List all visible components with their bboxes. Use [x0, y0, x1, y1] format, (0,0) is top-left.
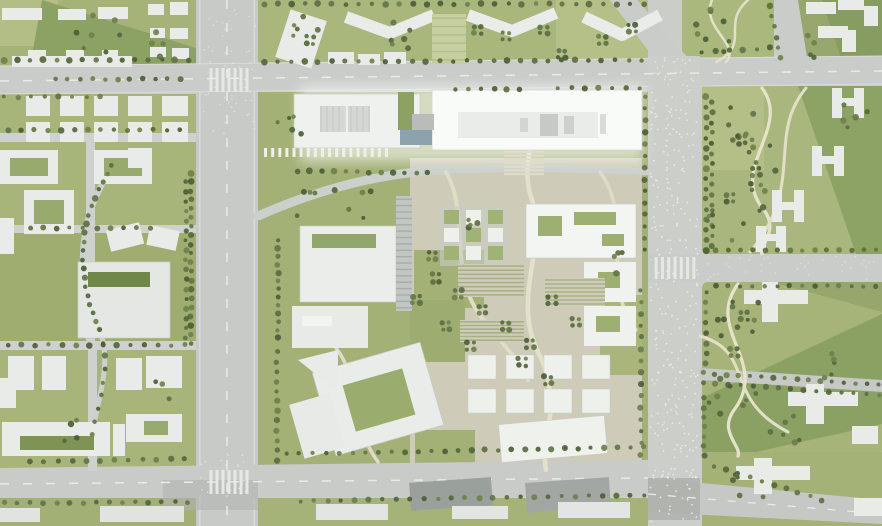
- tree: [425, 170, 430, 175]
- tree: [183, 238, 187, 242]
- tree: [332, 187, 338, 193]
- tree: [505, 495, 510, 500]
- tree: [113, 342, 119, 348]
- building: [26, 96, 50, 116]
- texture-dot: [667, 359, 669, 361]
- tree: [703, 227, 709, 233]
- texture-dot: [251, 69, 253, 71]
- tree: [188, 322, 195, 329]
- texture-dot: [691, 416, 693, 418]
- texture-dot: [244, 87, 246, 89]
- tree: [744, 310, 749, 315]
- tree: [791, 414, 796, 419]
- masterplan-site-plan: [0, 0, 882, 526]
- texture-dot: [686, 85, 688, 87]
- tree: [704, 351, 710, 357]
- tree: [464, 340, 470, 346]
- building: [842, 30, 856, 52]
- tree: [702, 360, 708, 366]
- tree: [390, 169, 396, 175]
- tree: [86, 342, 92, 348]
- building: [358, 54, 380, 65]
- texture-dot: [657, 67, 659, 69]
- building: [42, 356, 66, 390]
- texture-dot: [676, 444, 678, 446]
- texture-dot: [236, 90, 238, 92]
- tree: [800, 284, 804, 288]
- tree: [737, 493, 743, 499]
- building: [60, 96, 84, 116]
- tree: [703, 176, 708, 181]
- texture-dot: [671, 395, 673, 397]
- tree: [383, 59, 388, 64]
- tree: [576, 446, 581, 451]
- tree: [416, 449, 421, 454]
- tree: [442, 448, 448, 454]
- tree: [274, 398, 280, 404]
- tree: [274, 379, 280, 385]
- tree: [407, 496, 412, 501]
- tree: [308, 190, 313, 195]
- tree: [86, 293, 91, 298]
- texture-dot: [689, 219, 691, 221]
- tree: [707, 214, 711, 218]
- tree: [153, 457, 159, 463]
- tree: [808, 494, 812, 498]
- tree: [390, 42, 395, 47]
- texture-dot: [666, 485, 668, 487]
- tree: [184, 326, 188, 330]
- tree: [441, 328, 445, 332]
- building: [444, 228, 459, 242]
- tree: [127, 76, 132, 81]
- tree: [410, 294, 416, 300]
- tree: [639, 58, 643, 62]
- texture-dot: [653, 206, 655, 208]
- tree: [414, 171, 419, 176]
- texture-dot: [729, 256, 731, 258]
- tree: [46, 342, 50, 346]
- texture-dot: [655, 100, 657, 102]
- tree: [311, 498, 315, 502]
- tree: [703, 310, 708, 315]
- tree: [727, 39, 732, 44]
- texture-dot: [674, 457, 676, 459]
- building: [409, 477, 493, 511]
- building: [444, 246, 459, 260]
- texture-dot: [248, 16, 250, 18]
- texture-dot: [696, 121, 698, 123]
- texture-dot: [654, 432, 656, 434]
- building: [148, 4, 164, 15]
- texture-dot: [678, 118, 680, 120]
- tree: [641, 177, 647, 183]
- tree: [368, 188, 374, 194]
- tree: [276, 238, 280, 242]
- tree: [703, 114, 709, 120]
- tree: [424, 1, 430, 7]
- tree: [6, 343, 11, 348]
- texture-dot: [681, 445, 683, 447]
- building: [488, 228, 503, 242]
- texture-dot: [676, 131, 678, 133]
- building: [162, 96, 188, 116]
- texture-dot: [761, 270, 763, 272]
- tree: [87, 302, 92, 307]
- tree: [695, 31, 701, 37]
- tree: [183, 179, 188, 184]
- texture-dot: [669, 252, 671, 254]
- texture-dot: [670, 108, 672, 110]
- texture-dot: [224, 97, 226, 99]
- tree: [750, 247, 755, 252]
- building: [98, 7, 128, 19]
- tree: [703, 341, 709, 347]
- tree: [159, 499, 164, 504]
- tree: [452, 295, 458, 301]
- tree: [492, 58, 497, 63]
- texture-dot: [655, 61, 657, 63]
- tree: [730, 137, 736, 143]
- texture-dot: [691, 78, 693, 80]
- texture-dot: [224, 28, 226, 30]
- tree: [456, 448, 461, 453]
- texture-dot: [707, 279, 709, 281]
- tree: [482, 446, 488, 452]
- tree: [422, 496, 427, 501]
- courtyard: [602, 234, 624, 246]
- tree: [757, 172, 763, 178]
- tree: [638, 288, 642, 292]
- tree: [743, 140, 748, 145]
- texture-dot: [231, 106, 233, 108]
- tree: [90, 204, 94, 208]
- tree: [310, 451, 314, 455]
- texture-dot: [653, 474, 655, 476]
- building: [780, 202, 796, 210]
- tree: [701, 370, 706, 375]
- tree: [562, 445, 568, 451]
- tree: [112, 457, 118, 463]
- tree: [314, 59, 320, 65]
- tree: [703, 320, 708, 325]
- tree: [829, 372, 833, 376]
- tree: [504, 57, 511, 64]
- texture-dot: [850, 267, 852, 269]
- tree: [93, 57, 99, 63]
- tree: [112, 127, 116, 131]
- tree: [438, 58, 443, 63]
- tree: [183, 247, 189, 253]
- texture-dot: [671, 195, 673, 197]
- tree: [752, 317, 757, 322]
- tree: [548, 446, 554, 452]
- texture-dot: [684, 433, 686, 435]
- texture-dot: [222, 35, 224, 37]
- tree: [740, 402, 746, 408]
- tree: [188, 332, 193, 337]
- texture-dot: [688, 414, 690, 416]
- tree: [120, 500, 125, 505]
- texture-dot: [685, 239, 687, 241]
- tree: [709, 152, 714, 157]
- tree: [750, 173, 755, 178]
- building: [2, 8, 42, 20]
- street-curve: [446, 169, 646, 172]
- texture-dot: [655, 284, 657, 286]
- courtyard: [538, 216, 562, 236]
- building: [94, 122, 118, 142]
- tree: [72, 127, 77, 132]
- courtyard: [574, 212, 616, 225]
- tree: [85, 127, 91, 133]
- tree: [750, 166, 755, 171]
- tree: [627, 493, 632, 498]
- texture-dot: [678, 182, 680, 184]
- tree: [703, 330, 709, 336]
- roof-detail: [302, 316, 332, 326]
- tree: [83, 285, 88, 290]
- tree: [864, 392, 868, 396]
- tree: [721, 18, 727, 24]
- tree: [709, 99, 714, 104]
- tree: [94, 500, 99, 505]
- texture-dot: [669, 505, 671, 507]
- texture-dot: [661, 313, 663, 315]
- texture-dot: [665, 403, 667, 405]
- tree: [518, 58, 523, 63]
- texture-dot: [690, 472, 692, 474]
- building: [170, 28, 188, 39]
- texture-dot: [657, 129, 659, 131]
- texture-dot: [670, 409, 672, 411]
- texture-dot: [663, 450, 665, 452]
- atrium-detail: [564, 116, 574, 134]
- building: [0, 508, 40, 522]
- texture-dot: [863, 260, 865, 262]
- masterplan-viewport: [0, 0, 882, 526]
- tree: [189, 215, 194, 220]
- texture-dot: [232, 63, 234, 65]
- texture-dot: [667, 182, 669, 184]
- tree: [503, 86, 509, 92]
- texture-dot: [213, 130, 215, 132]
- tree: [642, 141, 648, 147]
- texture-dot: [684, 63, 686, 65]
- texture-dot: [687, 499, 689, 501]
- tree: [704, 136, 709, 141]
- texture-dot: [655, 116, 657, 118]
- tree: [98, 127, 103, 132]
- texture-dot: [237, 464, 239, 466]
- texture-dot: [685, 247, 687, 249]
- tree: [276, 295, 281, 300]
- texture-dot: [662, 330, 664, 332]
- tree: [825, 283, 829, 287]
- texture-dot: [657, 435, 659, 437]
- tree: [724, 372, 730, 378]
- texture-dot: [670, 363, 672, 365]
- texture-dot: [653, 184, 655, 186]
- texture-dot: [692, 134, 694, 136]
- tree: [418, 294, 422, 298]
- tree: [274, 417, 280, 423]
- texture-dot: [656, 330, 658, 332]
- tree: [703, 105, 708, 110]
- tree: [142, 342, 147, 347]
- tree: [380, 497, 384, 501]
- tree: [615, 250, 621, 256]
- tree: [629, 445, 633, 449]
- tree: [702, 453, 708, 459]
- building: [558, 502, 630, 518]
- tree: [714, 393, 720, 399]
- texture-dot: [659, 204, 661, 206]
- texture-dot: [679, 422, 681, 424]
- tree: [556, 55, 560, 59]
- tree: [643, 188, 647, 192]
- tree: [705, 290, 709, 294]
- tree: [586, 1, 593, 8]
- texture-dot: [677, 58, 679, 60]
- texture-dot: [691, 369, 693, 371]
- tree: [184, 209, 188, 213]
- tree: [93, 319, 98, 324]
- texture-dot: [680, 451, 682, 453]
- texture-dot: [673, 474, 675, 476]
- tree: [55, 501, 60, 506]
- building: [864, 6, 878, 26]
- tree: [768, 143, 772, 147]
- tree: [597, 41, 601, 45]
- tree: [751, 383, 756, 388]
- tree: [562, 55, 568, 61]
- tree: [91, 311, 96, 316]
- texture-dot: [255, 25, 257, 27]
- tree: [703, 145, 709, 151]
- texture-dot: [668, 473, 670, 475]
- tree: [800, 387, 806, 393]
- texture-dot: [844, 261, 846, 263]
- texture-dot: [694, 383, 696, 385]
- green-roof: [312, 234, 376, 248]
- texture-dot: [692, 469, 694, 471]
- tree: [787, 247, 793, 253]
- tree: [637, 405, 643, 411]
- texture-dot: [656, 348, 658, 350]
- texture-dot: [650, 487, 652, 489]
- tree: [501, 30, 505, 34]
- tree: [623, 85, 629, 91]
- tree: [704, 125, 709, 130]
- texture-dot: [248, 113, 250, 115]
- tree: [70, 458, 76, 464]
- tree: [298, 131, 304, 137]
- texture-dot: [695, 447, 697, 449]
- texture-dot: [657, 423, 659, 425]
- tree: [275, 328, 279, 332]
- tree: [638, 381, 644, 387]
- tree: [86, 213, 91, 218]
- texture-dot: [650, 520, 652, 522]
- texture-dot: [680, 109, 682, 111]
- tree: [577, 317, 581, 321]
- texture-dot: [212, 50, 214, 52]
- texture-dot: [688, 145, 690, 147]
- garden-plot: [432, 14, 466, 64]
- tree: [274, 245, 281, 252]
- tree: [537, 25, 543, 31]
- texture-dot: [663, 365, 665, 367]
- tree: [782, 420, 787, 425]
- texture-dot: [697, 374, 699, 376]
- tree: [853, 382, 857, 386]
- texture-dot: [873, 261, 875, 263]
- tree: [531, 344, 537, 350]
- tree: [471, 347, 477, 353]
- texture-dot: [665, 127, 667, 129]
- tree: [704, 237, 710, 243]
- texture-dot: [670, 239, 672, 241]
- tree: [173, 499, 177, 503]
- tree: [447, 320, 451, 324]
- tree: [472, 25, 477, 30]
- building: [116, 358, 142, 390]
- building: [736, 466, 810, 480]
- tree: [702, 93, 709, 100]
- texture-dot: [690, 375, 692, 377]
- tree: [312, 191, 317, 196]
- tree: [427, 250, 431, 254]
- texture-dot: [677, 202, 679, 204]
- texture-dot: [654, 221, 656, 223]
- texture-dot: [653, 107, 655, 109]
- tree: [275, 334, 281, 340]
- tree: [492, 1, 498, 7]
- tree: [291, 34, 295, 38]
- tree: [518, 495, 522, 499]
- tree: [642, 236, 647, 241]
- texture-dot: [243, 461, 245, 463]
- texture-dot: [253, 121, 255, 123]
- texture-dot: [682, 168, 684, 170]
- texture-dot: [675, 378, 677, 380]
- texture-dot: [203, 49, 205, 51]
- tree: [128, 343, 132, 347]
- tree: [188, 232, 194, 238]
- tree: [713, 247, 719, 253]
- tree: [275, 254, 280, 259]
- tree: [707, 400, 712, 405]
- texture-dot: [239, 66, 241, 68]
- tree: [501, 37, 505, 41]
- tree: [819, 498, 825, 504]
- tree: [70, 95, 74, 99]
- tree: [274, 407, 280, 413]
- tree: [559, 1, 564, 6]
- tree: [743, 131, 748, 136]
- tree: [613, 57, 618, 62]
- courtyard: [596, 316, 620, 332]
- texture-dot: [657, 73, 659, 75]
- texture-dot: [739, 257, 741, 259]
- tree: [40, 225, 46, 231]
- tree: [101, 179, 106, 184]
- tree: [750, 284, 754, 288]
- tree: [451, 59, 455, 63]
- tree: [83, 221, 90, 228]
- building: [113, 424, 125, 456]
